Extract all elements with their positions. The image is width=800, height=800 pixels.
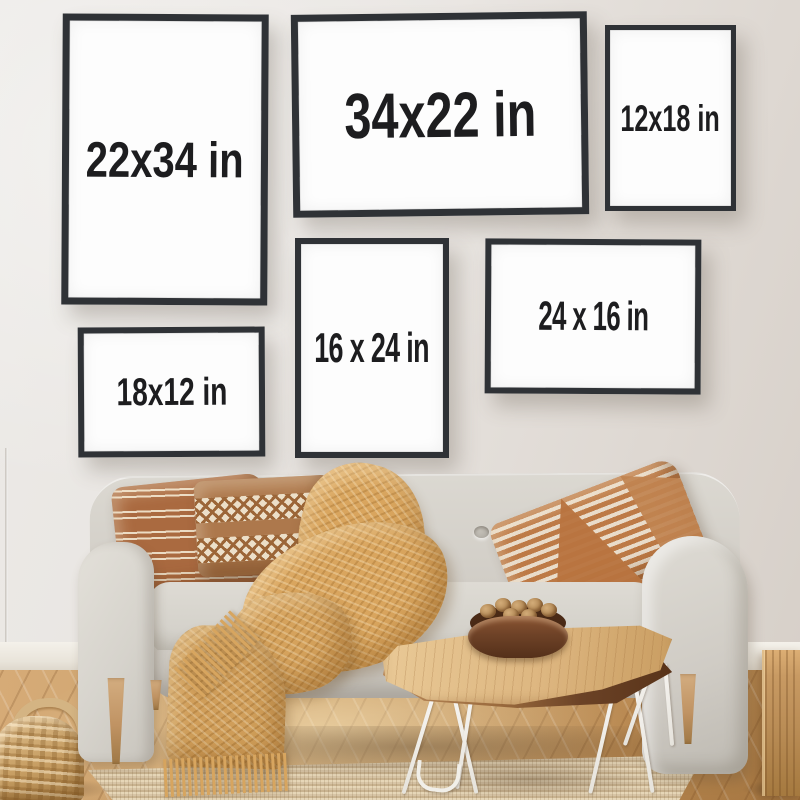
wall-panel-line (5, 448, 8, 654)
living-room-frame-mockup: 22x34 in 34x22 in 12x18 in 18x12 in 16 x… (0, 0, 800, 800)
wooden-cube-stool (762, 650, 800, 796)
frame-size-label: 22x34 in (86, 134, 244, 185)
walnut (480, 604, 496, 618)
frame-size-label: 16 x 24 in (315, 327, 430, 369)
blanket-fringe (163, 753, 289, 797)
frame-size-label: 24 x 16 in (538, 296, 648, 338)
frame-34x22: 34x22 in (291, 11, 589, 218)
woven-basket (0, 716, 84, 800)
frame-16x24: 16 x 24 in (295, 238, 449, 458)
sofa-tufting-button (474, 526, 489, 538)
frame-size-label: 12x18 in (621, 100, 720, 137)
frame-18x12: 18x12 in (78, 327, 266, 458)
frame-24x16: 24 x 16 in (485, 238, 702, 394)
frame-size-label: 34x22 in (344, 81, 537, 147)
frame-22x34: 22x34 in (61, 13, 269, 305)
frame-12x18: 12x18 in (605, 25, 736, 211)
frame-size-label: 18x12 in (116, 372, 227, 412)
walnut (541, 603, 557, 617)
wooden-bowl (468, 616, 568, 658)
